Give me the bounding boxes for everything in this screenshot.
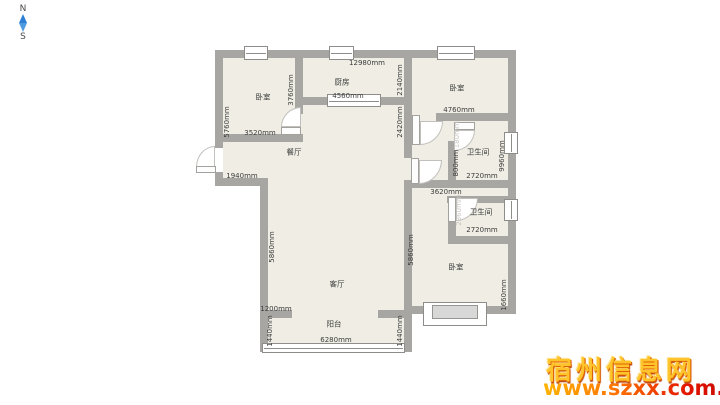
- hall-door-leaf: [411, 158, 419, 184]
- window-bedroom-tl-top: [244, 46, 268, 60]
- dim-bedroom-tl-bottom: 3520mm: [244, 129, 275, 137]
- wall-bathroom-lower-bottom: [448, 236, 516, 244]
- dim-balcony-right: 1440mm: [396, 315, 404, 346]
- dim-top-total: 12980mm: [349, 59, 385, 67]
- entry-door-arc: [196, 146, 215, 167]
- compass-needle-south-icon: [19, 23, 27, 32]
- entry-door-leaf: [196, 166, 216, 173]
- room-label-kitchen: 厨房: [335, 77, 350, 88]
- room-label-bathroom-upper: 卫生间: [467, 147, 490, 158]
- dim-living-right: 5860mm: [407, 234, 415, 265]
- bedroom-tr-door-leaf: [412, 115, 420, 145]
- dim-kitchen-right: 2140mm: [396, 64, 404, 95]
- room-label-bedroom-tl: 卧室: [256, 92, 271, 103]
- wall-middle-lower: [404, 186, 412, 352]
- room-label-bathroom-lower: 卫生间: [470, 207, 493, 218]
- bedroom-tl-door-leaf: [281, 127, 301, 135]
- watermark-site-url: www.szxx.com.cn: [543, 376, 720, 400]
- dim-dining-left: 5860mm: [268, 231, 276, 262]
- bay-window-sill: [432, 305, 478, 319]
- dim-balcony-left: 1440mm: [266, 315, 274, 346]
- room-label-bedroom-br: 卧室: [449, 262, 464, 273]
- dim-bathroom-upper-left: 800mm: [452, 150, 460, 177]
- dim-bathroom-lower-bottom: 2720mm: [466, 226, 497, 234]
- wall-bedroom-tr-bottom: [436, 113, 508, 121]
- compass-north-label: N: [14, 4, 32, 14]
- wall-bedroom-tl-right: [295, 58, 303, 114]
- compass-needle-north-icon: [19, 14, 27, 23]
- dim-balcony-bottom: 6280mm: [320, 336, 351, 344]
- dim-entry-wall: 1940mm: [226, 172, 257, 180]
- room-label-bedroom-tr: 卧室: [450, 83, 465, 94]
- dim-bathroom-upper-door: 1180mm: [453, 121, 461, 152]
- wall-middle-upper: [404, 58, 412, 158]
- compass: N S: [14, 4, 32, 42]
- compass-south-label: S: [14, 32, 32, 42]
- dim-bathroom-lower-door: 2360mm: [455, 194, 463, 225]
- dim-bedroom-br-right: 1660mm: [500, 279, 508, 310]
- window-bedroom-tr-top: [437, 46, 475, 60]
- dim-bedroom-tl-left: 5760mm: [223, 106, 231, 137]
- dim-bedroom-tl-right: 3760mm: [287, 74, 295, 105]
- floorplan-screenshot: N S 卧室 厨房 卧室: [0, 0, 720, 405]
- window-balcony-bottom: [262, 343, 405, 353]
- window-bathroom-upper-right: [504, 132, 518, 154]
- room-label-dining: 餐厅: [287, 147, 302, 158]
- dim-kitchen-bottom: 4560mm: [332, 92, 363, 100]
- room-label-balcony: 阳台: [327, 319, 342, 330]
- dim-bathroom-upper-bottom: 2720mm: [466, 172, 497, 180]
- room-label-living: 客厅: [330, 279, 345, 290]
- dim-living-bottom-wall: 1200mm: [260, 305, 291, 313]
- window-kitchen-top: [329, 46, 354, 60]
- dim-hall-right: 2420mm: [396, 106, 404, 137]
- dim-right-side: 9960mm: [498, 140, 506, 171]
- window-bathroom-lower-right: [504, 199, 518, 221]
- dim-bedroom-tr-bottom: 4760mm: [443, 106, 474, 114]
